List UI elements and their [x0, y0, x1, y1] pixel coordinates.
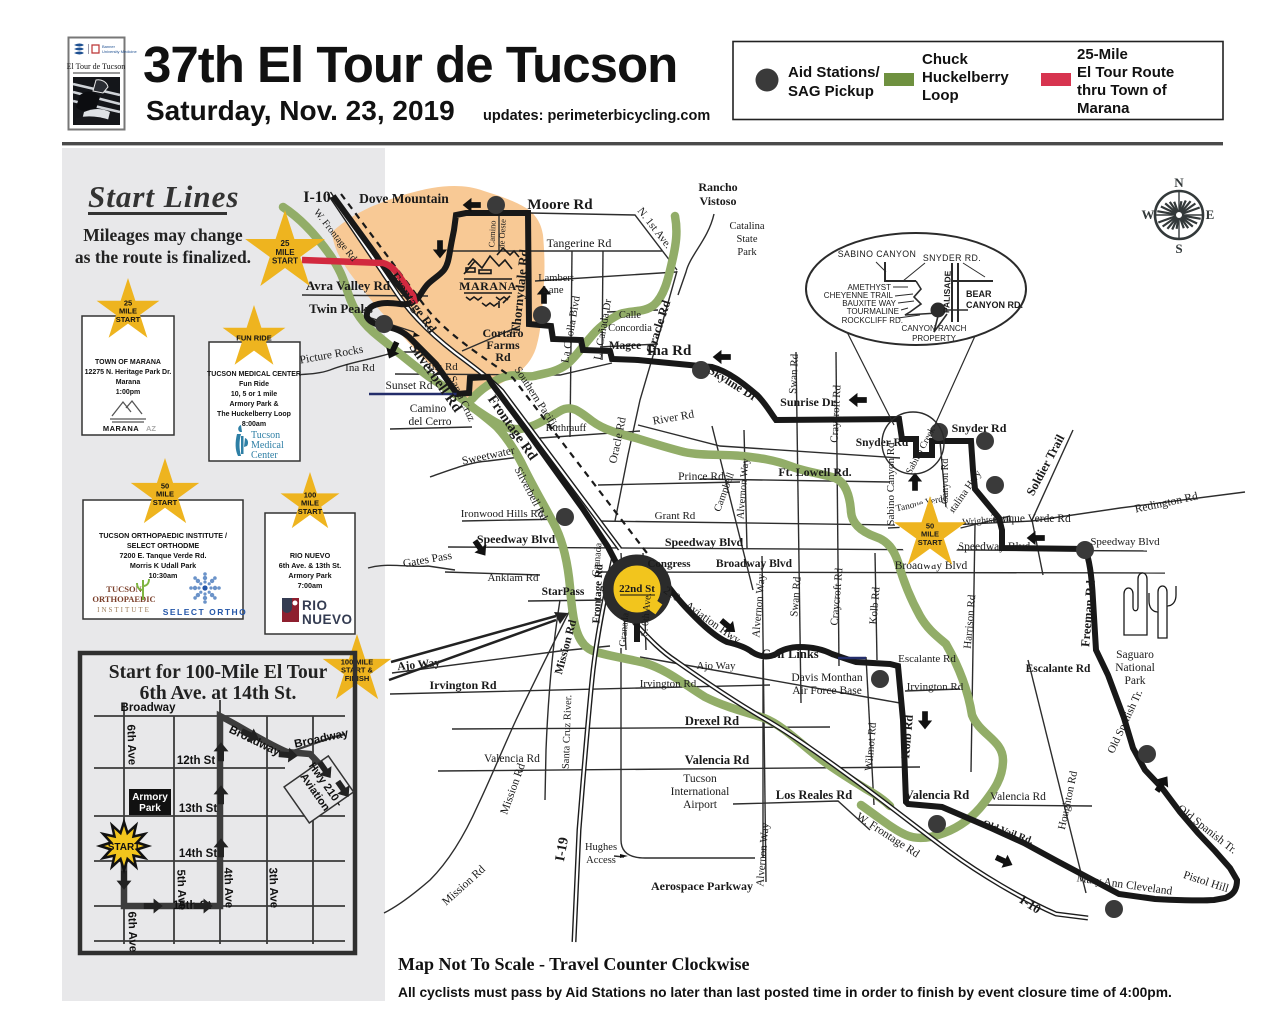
svg-text:MILE: MILE — [275, 248, 295, 257]
svg-text:SELECT ORTHODME: SELECT ORTHODME — [127, 541, 199, 550]
svg-text:ROCKCLIFF RD.: ROCKCLIFF RD. — [842, 316, 903, 325]
svg-text:ORTHOPAEDIC: ORTHOPAEDIC — [92, 594, 155, 604]
svg-text:Aerospace Parkway: Aerospace Parkway — [651, 879, 753, 893]
svg-text:Prince Rd: Prince Rd — [678, 471, 724, 483]
svg-text:W: W — [1142, 207, 1155, 222]
svg-text:Aid Stations/: Aid Stations/ — [788, 64, 881, 81]
svg-text:Speedway Blvd: Speedway Blvd — [477, 532, 556, 546]
svg-text:I-10: I-10 — [303, 189, 331, 206]
svg-text:25: 25 — [281, 239, 290, 248]
svg-text:Lambert: Lambert — [538, 273, 574, 284]
svg-text:Irvington Rd: Irvington Rd — [907, 681, 964, 693]
svg-text:Airport: Airport — [683, 799, 718, 811]
svg-text:4th Ave: 4th Ave — [221, 867, 234, 908]
svg-text:START: START — [108, 842, 141, 853]
svg-text:Start Lines: Start Lines — [88, 179, 239, 214]
svg-text:Ajo Way: Ajo Way — [697, 660, 736, 672]
svg-text:Irvington Rd: Irvington Rd — [429, 678, 496, 692]
svg-text:6th Ave. at 14th St.: 6th Ave. at 14th St. — [140, 683, 297, 704]
svg-text:Sabino Canyon Rd: Sabino Canyon Rd — [885, 442, 897, 526]
svg-text:Valencia Rd: Valencia Rd — [484, 753, 540, 765]
svg-text:SELECT ORTHO: SELECT ORTHO — [163, 607, 248, 617]
svg-text:Tucson: Tucson — [683, 773, 717, 785]
svg-text:Escalante Rd: Escalante Rd — [898, 653, 956, 665]
svg-text:6th Ave: 6th Ave — [125, 911, 138, 952]
svg-text:FUN RIDE: FUN RIDE — [236, 334, 271, 343]
svg-text:de Oeste: de Oeste — [496, 219, 508, 249]
svg-text:Marana: Marana — [1077, 100, 1130, 117]
svg-text:Moore Rd: Moore Rd — [527, 197, 593, 213]
svg-text:12th St: 12th St — [177, 755, 216, 767]
svg-text:37th El Tour de Tucson: 37th El Tour de Tucson — [143, 36, 677, 93]
svg-text:N: N — [1174, 175, 1184, 190]
svg-text:AZ: AZ — [146, 424, 156, 433]
svg-text:1:00pm: 1:00pm — [116, 389, 141, 396]
svg-text:StarPass: StarPass — [542, 586, 585, 598]
svg-text:Swan Rd: Swan Rd — [787, 353, 801, 394]
svg-text:University Medicine: University Medicine — [102, 49, 137, 54]
svg-text:Los Reales Rd: Los Reales Rd — [776, 788, 852, 802]
svg-text:Broadway: Broadway — [121, 702, 177, 714]
svg-text:14th St: 14th St — [179, 848, 218, 860]
svg-text:START: START — [153, 498, 178, 507]
svg-text:START: START — [272, 257, 298, 266]
svg-text:Drexel Rd: Drexel Rd — [685, 714, 739, 728]
svg-text:START: START — [116, 315, 141, 324]
svg-text:Calle: Calle — [619, 310, 641, 321]
svg-text:Armory: Armory — [132, 792, 168, 803]
svg-text:Marana: Marana — [116, 379, 141, 386]
svg-text:RIO: RIO — [302, 598, 328, 613]
svg-text:START: START — [918, 538, 943, 547]
svg-text:SABINO CANYON: SABINO CANYON — [838, 249, 917, 259]
svg-text:Valencia Rd: Valencia Rd — [905, 788, 970, 802]
svg-text:Grant Rd: Grant Rd — [655, 510, 696, 522]
svg-text:International: International — [671, 786, 730, 798]
svg-text:CANYON RD.: CANYON RD. — [966, 300, 1023, 310]
svg-text:Congress: Congress — [647, 558, 691, 570]
svg-text:Map Not To Scale - Travel Coun: Map Not To Scale - Travel Counter Clockw… — [398, 954, 750, 974]
svg-text:Huckelberry: Huckelberry — [922, 69, 1009, 86]
svg-text:NUEVO: NUEVO — [302, 612, 353, 627]
svg-text:Morris K Udall Park: Morris K Udall Park — [130, 561, 196, 570]
svg-text:7:00am: 7:00am — [298, 581, 323, 590]
svg-text:Valencia Rd: Valencia Rd — [685, 753, 750, 767]
svg-text:Center: Center — [251, 450, 278, 461]
svg-text:thru Town of: thru Town of — [1077, 82, 1168, 99]
svg-text:10:30am: 10:30am — [149, 571, 178, 580]
svg-text:Loop: Loop — [922, 87, 959, 104]
svg-text:Armory Park &: Armory Park & — [229, 401, 278, 408]
svg-text:Twin Peaks: Twin Peaks — [309, 301, 373, 316]
svg-text:Camino: Camino — [410, 403, 447, 415]
svg-text:Davis Monthan: Davis Monthan — [791, 672, 862, 684]
svg-text:E: E — [1206, 207, 1215, 222]
svg-text:S: S — [1175, 241, 1182, 256]
svg-text:as the route is finalized.: as the route is finalized. — [75, 247, 251, 267]
svg-text:Vistoso: Vistoso — [700, 194, 737, 208]
svg-text:TOURMALINE: TOURMALINE — [847, 307, 899, 316]
svg-text:State: State — [737, 234, 758, 245]
svg-text:10, 5 or 1 mile: 10, 5 or 1 mile — [231, 391, 277, 398]
svg-text:7200 E. Tanque Verde Rd.: 7200 E. Tanque Verde Rd. — [120, 551, 207, 560]
svg-text:Concordia: Concordia — [608, 323, 652, 334]
svg-text:updates: perimeterbicycling.co: updates: perimeterbicycling.com — [483, 108, 710, 124]
svg-text:TOWN OF MARANA: TOWN OF MARANA — [95, 359, 161, 366]
svg-text:25-Mile: 25-Mile — [1077, 46, 1128, 63]
svg-text:Lane: Lane — [543, 285, 564, 296]
svg-text:TUCSON MEDICAL CENTER: TUCSON MEDICAL CENTER — [207, 371, 301, 378]
svg-text:Avra Valley Rd: Avra Valley Rd — [306, 278, 391, 293]
svg-text:Broadway Blvd: Broadway Blvd — [716, 558, 793, 570]
svg-text:Ruthrauff: Ruthrauff — [546, 423, 587, 434]
svg-text:Ina Rd: Ina Rd — [345, 362, 375, 374]
svg-text:Tanque Verde Rd: Tanque Verde Rd — [991, 513, 1071, 525]
svg-text:PROPERTY: PROPERTY — [912, 334, 957, 343]
svg-text:El Tour de Tucson: El Tour de Tucson — [67, 62, 126, 71]
svg-text:Magee: Magee — [609, 340, 642, 352]
svg-text:Chuck: Chuck — [922, 51, 969, 68]
svg-text:Ft. Lowell Rd.: Ft. Lowell Rd. — [778, 465, 851, 479]
svg-text:Ironwood Hills Rd: Ironwood Hills Rd — [461, 508, 544, 520]
svg-text:Start for 100-Mile El Tour: Start for 100-Mile El Tour — [109, 662, 328, 683]
svg-text:Snyder Rd: Snyder Rd — [952, 421, 1007, 435]
svg-text:Catalina: Catalina — [730, 221, 765, 232]
svg-text:PALISADE: PALISADE — [941, 270, 952, 313]
svg-text:National: National — [1115, 662, 1155, 674]
svg-text:START: START — [298, 507, 323, 516]
svg-text:Tangerine Rd: Tangerine Rd — [547, 236, 612, 250]
svg-text:SNYDER RD.: SNYDER RD. — [923, 253, 981, 263]
svg-text:3th Ave: 3th Ave — [266, 867, 279, 908]
svg-text:MARANA: MARANA — [459, 279, 517, 293]
svg-text:RIO NUEVO: RIO NUEVO — [290, 551, 331, 560]
svg-text:Saturday, Nov. 23, 2019: Saturday, Nov. 23, 2019 — [146, 95, 455, 126]
svg-text:Air Force Base: Air Force Base — [792, 685, 862, 697]
svg-text:MARANA: MARANA — [103, 424, 139, 433]
svg-text:INSTITUTE: INSTITUTE — [97, 606, 151, 614]
svg-text:TUCSON ORTHOPAEDIC INSTITUTE /: TUCSON ORTHOPAEDIC INSTITUTE / — [99, 531, 227, 540]
svg-text:All cyclists must pass by Aid: All cyclists must pass by Aid Stations n… — [398, 985, 1172, 1000]
svg-text:Escalante Rd: Escalante Rd — [1026, 663, 1091, 675]
svg-text:5th Ave: 5th Ave — [174, 869, 187, 910]
svg-text:12275 N. Heritage Park Dr.: 12275 N. Heritage Park Dr. — [85, 369, 172, 376]
svg-text:Hughes: Hughes — [585, 842, 617, 853]
svg-text:Speedway Blvd: Speedway Blvd — [958, 541, 1031, 553]
svg-text:Dove Mountain: Dove Mountain — [359, 191, 449, 206]
svg-text:Rancho: Rancho — [698, 180, 737, 194]
svg-text:Anklam Rd: Anklam Rd — [487, 572, 539, 584]
svg-text:del Cerro: del Cerro — [408, 416, 451, 428]
svg-text:CANYON RANCH: CANYON RANCH — [902, 324, 967, 333]
svg-text:6th Ave: 6th Ave — [124, 724, 137, 765]
svg-text:Park: Park — [1124, 675, 1145, 687]
svg-text:Saguaro: Saguaro — [1116, 649, 1154, 661]
svg-text:Speedway Blvd: Speedway Blvd — [1090, 536, 1160, 548]
svg-text:Golf Links: Golf Links — [761, 647, 818, 661]
svg-text:8:00am: 8:00am — [242, 421, 266, 428]
svg-text:Access: Access — [586, 855, 616, 866]
svg-text:The Huckelberry Loop: The Huckelberry Loop — [217, 411, 291, 418]
svg-text:El Tour Route: El Tour Route — [1077, 64, 1174, 81]
svg-text:BEAR: BEAR — [966, 289, 992, 299]
svg-text:Fun Ride: Fun Ride — [239, 381, 269, 388]
svg-text:Irvington Rd: Irvington Rd — [640, 678, 697, 690]
svg-text:Mileages may change: Mileages may change — [83, 225, 243, 245]
svg-text:Rd: Rd — [495, 350, 511, 364]
svg-text:Armory Park: Armory Park — [288, 571, 331, 580]
svg-text:Sunrise Dr: Sunrise Dr — [780, 395, 836, 409]
svg-text:6th Ave. & 13th St.: 6th Ave. & 13th St. — [279, 561, 342, 570]
svg-text:Park: Park — [737, 247, 757, 258]
svg-text:Speedway Blvd: Speedway Blvd — [665, 535, 744, 549]
svg-text:Valencia Rd: Valencia Rd — [990, 791, 1046, 803]
svg-text:Park: Park — [139, 803, 161, 814]
svg-text:13th St: 13th St — [179, 803, 218, 815]
svg-text:SAG Pickup: SAG Pickup — [788, 83, 874, 100]
svg-text:Ina Rd: Ina Rd — [647, 343, 692, 359]
svg-text:Sunset Rd: Sunset Rd — [386, 380, 433, 392]
